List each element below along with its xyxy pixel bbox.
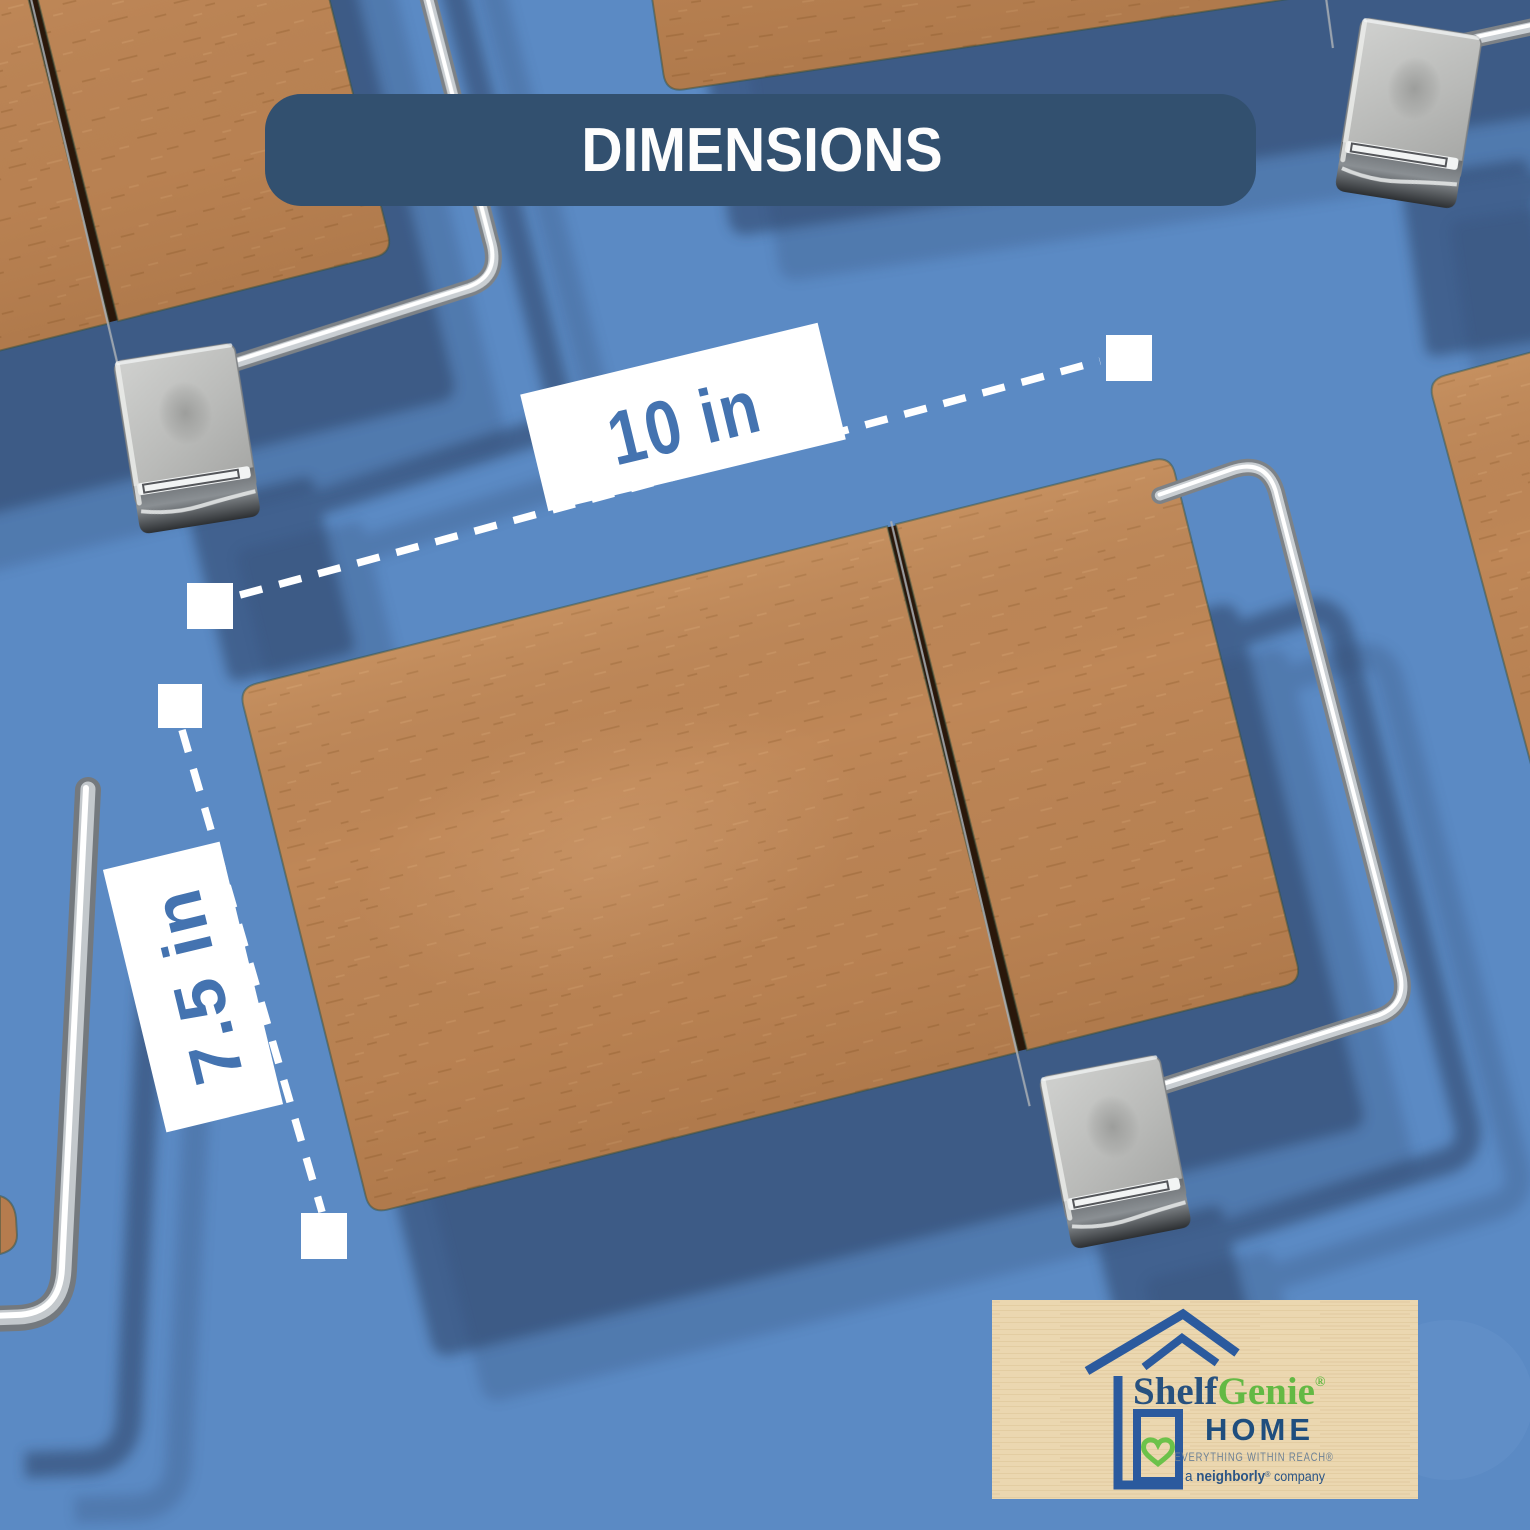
svg-text:DIMENSIONS: DIMENSIONS [581,115,942,185]
svg-text:EVERYTHING WITHIN REACH®: EVERYTHING WITHIN REACH® [1174,1451,1333,1464]
svg-text:HOME: HOME [1205,1412,1314,1447]
svg-text:ShelfGenie®: ShelfGenie® [1133,1370,1326,1413]
svg-text:a neighborly® company: a neighborly® company [1185,1468,1325,1485]
